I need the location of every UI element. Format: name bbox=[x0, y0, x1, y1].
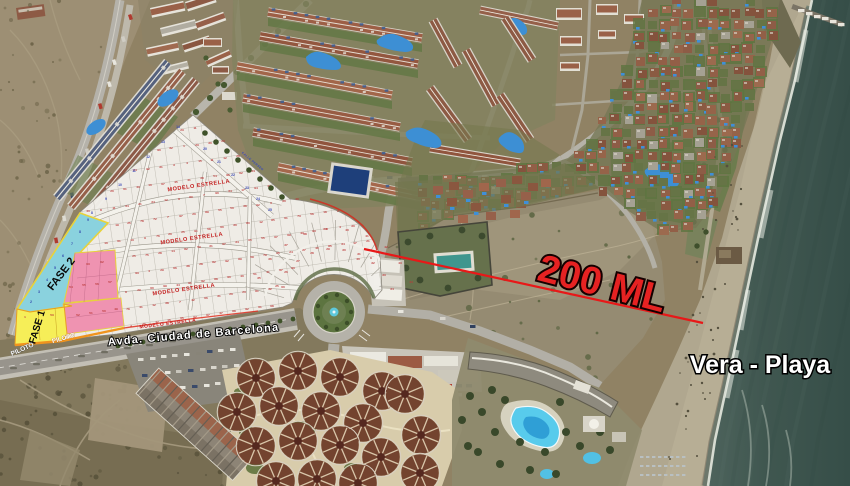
svg-text:67: 67 bbox=[274, 235, 278, 239]
svg-text:67: 67 bbox=[279, 268, 283, 272]
svg-text:29: 29 bbox=[160, 268, 164, 272]
svg-text:40: 40 bbox=[345, 228, 349, 232]
svg-text:30: 30 bbox=[351, 224, 355, 228]
svg-text:93: 93 bbox=[291, 266, 295, 270]
svg-text:1: 1 bbox=[24, 315, 26, 319]
svg-text:78: 78 bbox=[126, 307, 130, 311]
svg-text:63: 63 bbox=[86, 262, 90, 266]
svg-text:8: 8 bbox=[79, 230, 81, 234]
svg-text:25: 25 bbox=[181, 230, 185, 234]
svg-text:61: 61 bbox=[123, 187, 127, 191]
svg-text:20: 20 bbox=[110, 189, 114, 193]
svg-text:80: 80 bbox=[189, 195, 193, 199]
svg-text:75: 75 bbox=[145, 253, 149, 257]
svg-text:97: 97 bbox=[179, 214, 183, 218]
svg-text:62: 62 bbox=[100, 260, 104, 264]
svg-text:15: 15 bbox=[198, 159, 202, 163]
svg-text:14: 14 bbox=[176, 125, 180, 129]
svg-text:35: 35 bbox=[257, 276, 261, 280]
svg-text:55: 55 bbox=[218, 208, 222, 212]
svg-text:60: 60 bbox=[220, 225, 224, 229]
svg-text:96: 96 bbox=[226, 173, 230, 177]
svg-text:9: 9 bbox=[87, 218, 89, 222]
svg-text:82: 82 bbox=[212, 260, 216, 264]
svg-text:82: 82 bbox=[184, 247, 188, 251]
svg-text:28: 28 bbox=[199, 262, 203, 266]
svg-text:56: 56 bbox=[95, 282, 99, 286]
svg-text:11: 11 bbox=[132, 169, 136, 173]
svg-text:18: 18 bbox=[323, 210, 327, 214]
svg-text:30: 30 bbox=[342, 248, 346, 252]
svg-text:69: 69 bbox=[287, 233, 291, 237]
svg-text:11: 11 bbox=[193, 126, 197, 130]
svg-text:92: 92 bbox=[201, 279, 205, 283]
svg-text:8: 8 bbox=[91, 211, 93, 215]
svg-text:7: 7 bbox=[203, 193, 205, 197]
svg-text:38: 38 bbox=[303, 232, 307, 236]
svg-text:10: 10 bbox=[148, 183, 152, 187]
svg-text:21: 21 bbox=[138, 202, 142, 206]
svg-text:12: 12 bbox=[146, 155, 150, 159]
svg-text:7: 7 bbox=[71, 242, 73, 246]
svg-text:49: 49 bbox=[114, 307, 118, 311]
svg-text:44: 44 bbox=[409, 280, 413, 284]
svg-text:29: 29 bbox=[326, 247, 330, 251]
svg-text:66: 66 bbox=[204, 296, 208, 300]
svg-text:7: 7 bbox=[179, 300, 181, 304]
svg-text:40: 40 bbox=[295, 197, 299, 201]
svg-text:81: 81 bbox=[255, 289, 259, 293]
svg-text:20: 20 bbox=[229, 292, 233, 296]
svg-text:41: 41 bbox=[266, 270, 270, 274]
svg-text:36: 36 bbox=[268, 257, 272, 261]
svg-text:56: 56 bbox=[310, 212, 314, 216]
svg-text:Vera - Playa: Vera - Playa bbox=[690, 351, 831, 379]
svg-text:9: 9 bbox=[178, 197, 180, 201]
svg-text:11: 11 bbox=[210, 158, 214, 162]
svg-text:79: 79 bbox=[263, 253, 267, 257]
svg-text:31: 31 bbox=[217, 294, 221, 298]
svg-text:14: 14 bbox=[171, 249, 175, 253]
svg-text:89: 89 bbox=[238, 257, 242, 261]
svg-text:58: 58 bbox=[207, 227, 211, 231]
svg-text:97: 97 bbox=[222, 242, 226, 246]
svg-text:42: 42 bbox=[384, 245, 388, 249]
svg-text:38: 38 bbox=[200, 176, 204, 180]
svg-text:38: 38 bbox=[243, 204, 247, 208]
svg-text:89: 89 bbox=[205, 210, 209, 214]
svg-text:27: 27 bbox=[302, 248, 306, 252]
svg-text:19: 19 bbox=[115, 223, 119, 227]
svg-text:13: 13 bbox=[130, 238, 134, 242]
svg-text:88: 88 bbox=[214, 277, 218, 281]
svg-text:52: 52 bbox=[76, 313, 80, 317]
svg-text:85: 85 bbox=[271, 218, 275, 222]
svg-text:34: 34 bbox=[125, 204, 129, 208]
svg-text:31: 31 bbox=[209, 244, 213, 248]
svg-text:60: 60 bbox=[150, 286, 154, 290]
svg-text:5: 5 bbox=[54, 266, 56, 270]
svg-text:13: 13 bbox=[161, 140, 165, 144]
svg-text:90: 90 bbox=[215, 191, 219, 195]
svg-text:76: 76 bbox=[156, 234, 160, 238]
svg-text:12: 12 bbox=[223, 156, 227, 160]
svg-text:40: 40 bbox=[240, 274, 244, 278]
svg-text:29: 29 bbox=[137, 288, 141, 292]
svg-text:25: 25 bbox=[276, 251, 280, 255]
svg-text:3: 3 bbox=[38, 290, 40, 294]
svg-text:1: 1 bbox=[183, 144, 185, 148]
svg-text:53: 53 bbox=[50, 313, 54, 317]
svg-text:23: 23 bbox=[180, 128, 184, 132]
svg-text:21: 21 bbox=[217, 160, 221, 164]
svg-text:51: 51 bbox=[89, 311, 93, 315]
svg-text:32: 32 bbox=[268, 287, 272, 291]
svg-text:10: 10 bbox=[118, 183, 122, 187]
svg-text:92: 92 bbox=[146, 167, 150, 171]
svg-text:41: 41 bbox=[365, 234, 369, 238]
svg-text:34: 34 bbox=[151, 200, 155, 204]
svg-text:30: 30 bbox=[208, 141, 212, 145]
svg-text:91: 91 bbox=[194, 229, 198, 233]
svg-text:39: 39 bbox=[323, 227, 327, 231]
svg-text:30: 30 bbox=[233, 223, 237, 227]
svg-text:55: 55 bbox=[82, 283, 86, 287]
svg-text:59: 59 bbox=[197, 245, 201, 249]
svg-text:25: 25 bbox=[275, 284, 279, 288]
svg-text:4: 4 bbox=[148, 269, 150, 273]
svg-text:41: 41 bbox=[139, 305, 143, 309]
svg-text:43: 43 bbox=[398, 261, 402, 265]
svg-text:44: 44 bbox=[176, 283, 180, 287]
svg-text:38: 38 bbox=[186, 264, 190, 268]
svg-text:31: 31 bbox=[357, 252, 361, 256]
svg-text:27: 27 bbox=[296, 259, 300, 263]
svg-text:23: 23 bbox=[242, 290, 246, 294]
svg-text:25: 25 bbox=[132, 254, 136, 258]
svg-text:3: 3 bbox=[270, 201, 272, 205]
svg-text:4: 4 bbox=[186, 161, 188, 165]
svg-text:24: 24 bbox=[256, 197, 260, 201]
svg-text:21: 21 bbox=[366, 239, 370, 243]
svg-text:23: 23 bbox=[195, 143, 199, 147]
svg-text:6: 6 bbox=[62, 254, 64, 258]
svg-text:54: 54 bbox=[213, 174, 217, 178]
svg-text:22: 22 bbox=[231, 173, 235, 177]
svg-text:33: 33 bbox=[382, 273, 386, 277]
svg-text:28: 28 bbox=[310, 251, 314, 255]
svg-text:43: 43 bbox=[86, 209, 90, 213]
svg-text:88: 88 bbox=[232, 309, 236, 313]
svg-text:68: 68 bbox=[270, 304, 274, 308]
svg-text:66: 66 bbox=[173, 266, 177, 270]
svg-text:61: 61 bbox=[117, 239, 121, 243]
svg-text:32: 32 bbox=[169, 146, 173, 150]
svg-text:47: 47 bbox=[219, 311, 223, 315]
svg-text:10: 10 bbox=[104, 241, 108, 245]
svg-text:20: 20 bbox=[192, 212, 196, 216]
svg-text:50: 50 bbox=[102, 309, 106, 313]
svg-text:37: 37 bbox=[284, 243, 288, 247]
svg-text:32: 32 bbox=[371, 261, 375, 265]
svg-text:94: 94 bbox=[254, 186, 258, 190]
svg-text:4: 4 bbox=[339, 225, 341, 229]
svg-text:80: 80 bbox=[246, 221, 250, 225]
svg-text:28: 28 bbox=[158, 251, 162, 255]
svg-text:93: 93 bbox=[312, 229, 316, 233]
svg-text:93: 93 bbox=[135, 271, 139, 275]
svg-text:3: 3 bbox=[173, 163, 175, 167]
svg-text:73: 73 bbox=[297, 214, 301, 218]
svg-text:43: 43 bbox=[136, 185, 140, 189]
svg-text:54: 54 bbox=[69, 285, 73, 289]
svg-text:92: 92 bbox=[225, 259, 229, 263]
svg-text:34: 34 bbox=[228, 189, 232, 193]
svg-text:45: 45 bbox=[174, 180, 178, 184]
svg-text:9: 9 bbox=[144, 236, 146, 240]
svg-text:23: 23 bbox=[221, 139, 225, 143]
svg-text:50: 50 bbox=[230, 206, 234, 210]
svg-text:65: 65 bbox=[248, 238, 252, 242]
svg-text:41: 41 bbox=[187, 178, 191, 182]
svg-text:20: 20 bbox=[168, 232, 172, 236]
svg-text:8: 8 bbox=[125, 290, 127, 294]
svg-text:40: 40 bbox=[315, 246, 319, 250]
svg-text:78: 78 bbox=[140, 219, 144, 223]
svg-text:34: 34 bbox=[341, 242, 345, 246]
svg-text:42: 42 bbox=[191, 298, 195, 302]
svg-text:23: 23 bbox=[245, 186, 249, 190]
svg-text:92: 92 bbox=[256, 203, 260, 207]
svg-text:7: 7 bbox=[167, 215, 169, 219]
svg-text:40: 40 bbox=[356, 257, 360, 261]
svg-text:12: 12 bbox=[259, 220, 263, 224]
svg-text:59: 59 bbox=[250, 255, 254, 259]
svg-text:11: 11 bbox=[112, 206, 116, 210]
svg-text:12: 12 bbox=[152, 303, 156, 307]
svg-text:34: 34 bbox=[390, 287, 394, 291]
svg-text:25: 25 bbox=[127, 221, 131, 225]
svg-text:91: 91 bbox=[188, 281, 192, 285]
svg-text:8: 8 bbox=[100, 208, 102, 212]
svg-text:34: 34 bbox=[251, 169, 255, 173]
svg-text:8: 8 bbox=[370, 256, 372, 260]
svg-text:90: 90 bbox=[227, 275, 231, 279]
svg-text:9: 9 bbox=[105, 197, 107, 201]
svg-text:20: 20 bbox=[203, 147, 207, 151]
svg-text:90: 90 bbox=[157, 148, 161, 152]
svg-text:31: 31 bbox=[159, 165, 163, 169]
svg-text:24: 24 bbox=[289, 250, 293, 254]
svg-text:67: 67 bbox=[161, 182, 165, 186]
svg-text:34: 34 bbox=[235, 240, 239, 244]
svg-text:12: 12 bbox=[164, 198, 168, 202]
svg-text:38: 38 bbox=[165, 301, 169, 305]
svg-text:92: 92 bbox=[245, 307, 249, 311]
svg-text:55: 55 bbox=[261, 236, 265, 240]
svg-text:72: 72 bbox=[153, 217, 157, 221]
svg-text:25: 25 bbox=[268, 208, 272, 212]
svg-text:60: 60 bbox=[281, 285, 285, 289]
svg-text:61: 61 bbox=[258, 305, 262, 309]
svg-text:17: 17 bbox=[353, 241, 357, 245]
svg-text:99: 99 bbox=[163, 284, 167, 288]
svg-text:62: 62 bbox=[239, 171, 243, 175]
svg-text:57: 57 bbox=[108, 280, 112, 284]
svg-text:2: 2 bbox=[30, 300, 32, 304]
svg-text:26: 26 bbox=[284, 270, 288, 274]
svg-text:61: 61 bbox=[284, 216, 288, 220]
